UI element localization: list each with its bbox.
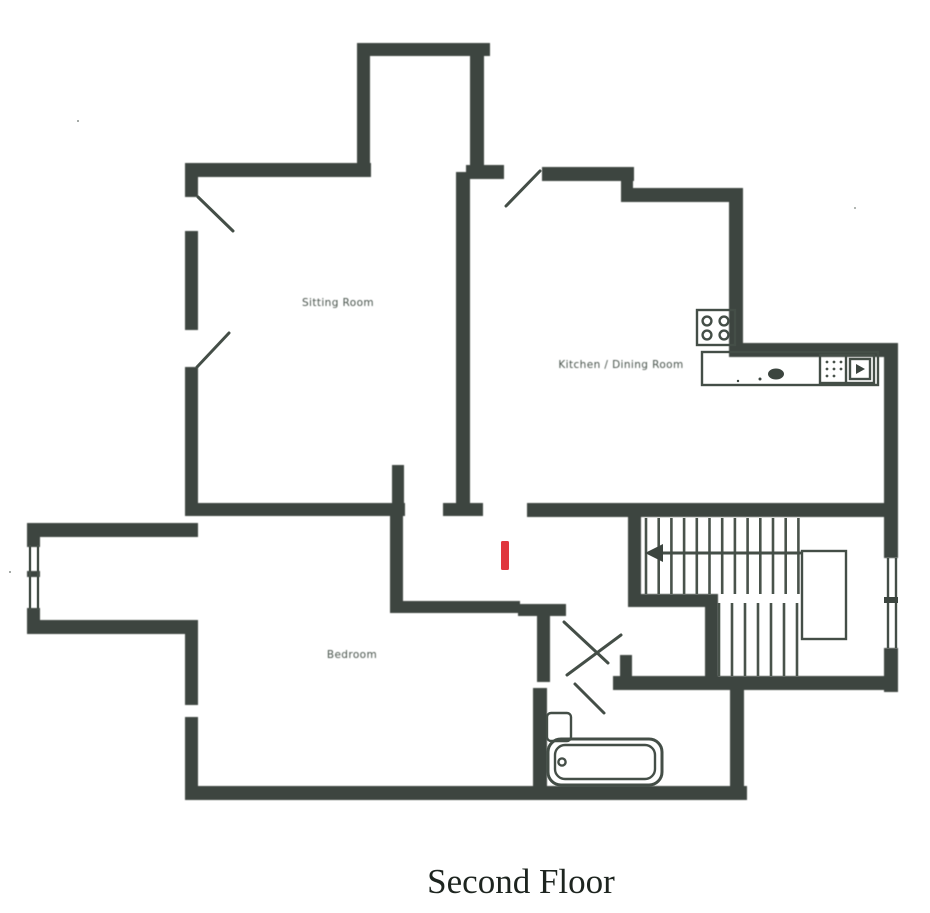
scan-speck bbox=[77, 120, 79, 122]
wall-segment bbox=[537, 614, 550, 682]
wall-segment bbox=[730, 690, 744, 800]
floor-title: Second Floor bbox=[427, 862, 615, 901]
door-swing-line bbox=[564, 622, 608, 663]
burner bbox=[720, 317, 729, 326]
bathtub-inner bbox=[555, 745, 655, 779]
window-left bbox=[30, 545, 38, 610]
wall-segment bbox=[527, 503, 884, 517]
wall-segment bbox=[621, 188, 743, 202]
wall-segment bbox=[443, 503, 483, 516]
stair-direction-arrow bbox=[645, 544, 663, 562]
bath-tap bbox=[558, 758, 565, 765]
room-label-bedroom: Bedroom bbox=[327, 649, 377, 661]
scanned-page: Sitting Room Kitchen / Dining Room Bedro… bbox=[0, 0, 930, 913]
toilet bbox=[547, 713, 571, 741]
wall-segment bbox=[390, 601, 520, 613]
door-swing-line bbox=[506, 171, 540, 206]
door-swing-line bbox=[575, 684, 604, 713]
window-mid-tick bbox=[884, 597, 898, 603]
wall-segment bbox=[185, 163, 371, 177]
wall-segment bbox=[185, 367, 198, 513]
wall-segment bbox=[185, 786, 747, 800]
wall-segment bbox=[185, 503, 405, 516]
scan-speck bbox=[854, 207, 856, 209]
counter-speck bbox=[759, 378, 762, 381]
bathroom-fixtures bbox=[547, 713, 662, 785]
wall-segment bbox=[27, 523, 198, 537]
burner bbox=[703, 317, 712, 326]
wall-segment bbox=[456, 172, 470, 506]
wall-segment bbox=[357, 43, 370, 170]
wall-segment bbox=[613, 676, 898, 690]
wall-segment bbox=[705, 601, 718, 683]
walls bbox=[27, 43, 898, 800]
floor-plan-svg: Sitting Room Kitchen / Dining Room Bedro… bbox=[0, 0, 930, 913]
door-swing-line bbox=[198, 197, 233, 231]
door-swings bbox=[197, 171, 621, 713]
stair-landing bbox=[802, 551, 846, 639]
wall-segment bbox=[185, 163, 198, 197]
door-swing-line bbox=[567, 635, 621, 675]
wall-segment bbox=[466, 165, 504, 179]
sink-tap-arrow bbox=[856, 364, 865, 374]
counter-speck bbox=[737, 380, 739, 382]
wall-segment bbox=[628, 594, 718, 607]
wall-segment bbox=[542, 167, 634, 181]
sink-drainer-dots bbox=[826, 361, 843, 378]
stair-upper-treads bbox=[646, 518, 798, 594]
counter-item-blob bbox=[768, 369, 784, 380]
wall-segment bbox=[533, 688, 547, 788]
wall-segment bbox=[620, 655, 632, 678]
wall-segment bbox=[185, 231, 198, 330]
burner bbox=[703, 331, 712, 340]
burner bbox=[720, 331, 729, 340]
wall-segment bbox=[27, 620, 198, 634]
door-swing-line bbox=[197, 333, 229, 367]
room-label-sitting-room: Sitting Room bbox=[302, 297, 374, 309]
wall-segment bbox=[628, 516, 641, 602]
wall-segment bbox=[390, 503, 403, 613]
wall-segment bbox=[884, 343, 898, 558]
wall-segment bbox=[27, 523, 40, 547]
wall-segment bbox=[470, 43, 484, 173]
wall-segment bbox=[185, 633, 198, 705]
red-position-marker bbox=[501, 541, 509, 570]
scan-speck bbox=[9, 571, 11, 573]
stair-lower-treads bbox=[719, 603, 797, 676]
room-label-kitchen-dining-room: Kitchen / Dining Room bbox=[558, 359, 683, 371]
window-right bbox=[884, 558, 898, 648]
